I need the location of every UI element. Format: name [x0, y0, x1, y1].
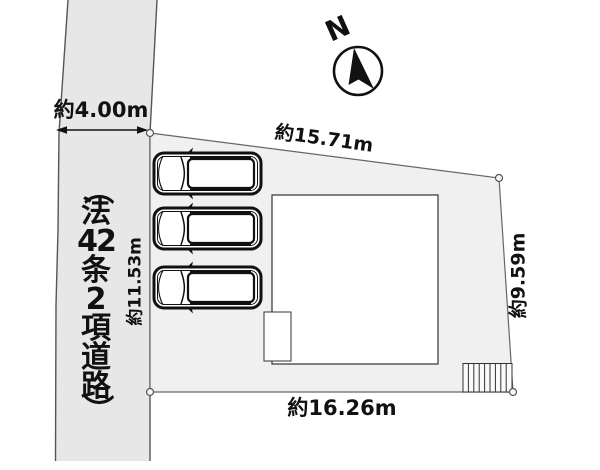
road-name-char: 42 — [77, 227, 115, 256]
road-name-char: 項 — [81, 314, 111, 343]
road-name-char: 2 — [86, 285, 107, 314]
car-icon-2 — [154, 203, 261, 255]
car-icon-1 — [154, 148, 261, 200]
road-name-char: 道 — [81, 343, 111, 372]
site-plan: 約4.00m 約15.71m 約9.59m 約11.53m 約16.26m N … — [0, 0, 600, 470]
dimension-label-left: 約11.53m — [127, 211, 146, 351]
road-width-label: 約4.00m — [46, 99, 156, 122]
compass-icon — [334, 47, 382, 95]
road-name-char: （ — [88, 175, 105, 205]
dimension-label-bottom: 約16.26m — [282, 397, 402, 420]
dimension-label-right: 約9.59m — [509, 215, 530, 335]
building-footprint — [272, 195, 438, 364]
stairs-hatch — [463, 364, 512, 393]
road-name-label: （ 法 42 条 2 項 道 路 ） — [74, 181, 118, 418]
entrance-porch — [264, 312, 291, 361]
corner-marker-top-left — [147, 130, 154, 137]
corner-marker-bottom-right — [510, 389, 517, 396]
road-name-char: ） — [88, 395, 105, 425]
road-name-char: 条 — [81, 256, 111, 285]
car-icon-3 — [154, 262, 261, 314]
corner-marker-top-right — [496, 175, 503, 182]
corner-marker-bottom-left — [147, 389, 154, 396]
